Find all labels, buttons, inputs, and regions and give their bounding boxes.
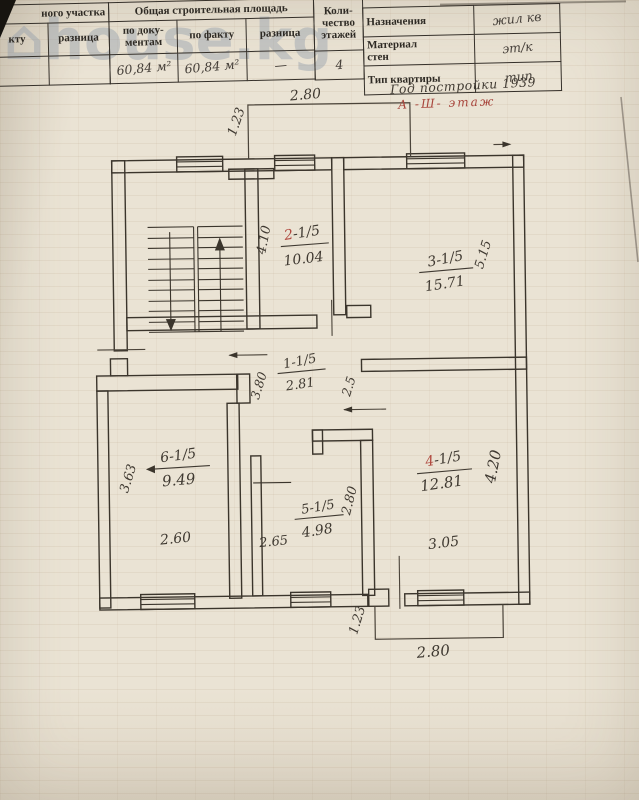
corridor-1-number: 1-1/5 — [282, 351, 318, 372]
dim-top-balcony-width: 2.80 — [288, 86, 321, 105]
dim-room6-width: 2.60 — [158, 530, 192, 549]
dim-room2-height: 4.10 — [254, 224, 275, 256]
window — [141, 594, 195, 610]
room-6-area: 9.49 — [161, 470, 196, 491]
room-5-number: 5-1/5 — [300, 497, 336, 517]
dim-corridor-depth: 2.5 — [338, 374, 359, 398]
dim-room5-height: 2.80 — [339, 485, 361, 518]
room-3-number: 3-1/5 — [426, 248, 465, 271]
dim-bottom-balcony-width: 2.80 — [415, 641, 451, 662]
dim-room3-height: 5.15 — [472, 239, 495, 271]
window — [291, 592, 331, 608]
dim-top-balcony-depth: 1.23 — [225, 106, 249, 138]
room-5-area: 4.98 — [300, 521, 334, 542]
stair-arrow-up — [215, 237, 226, 331]
window — [275, 155, 315, 171]
scanned-document-page: ⌂house.kg ного участка кту разница Общая… — [0, 0, 639, 800]
dim-room4-width: 3.05 — [427, 534, 460, 554]
page-edge-line — [621, 97, 638, 262]
stair-arrow-down — [165, 232, 176, 331]
window — [418, 590, 464, 606]
window — [407, 153, 465, 169]
bottom-balcony — [375, 604, 503, 639]
room-2-area: 10.04 — [283, 249, 325, 270]
dim-room5-width: 2.65 — [258, 533, 289, 551]
room-3-area: 15.71 — [424, 273, 466, 295]
room-6-number: 6-1/5 — [159, 446, 197, 467]
dim-bottom-balcony-depth: 1.23 — [346, 604, 369, 636]
room-4-area: 12.81 — [419, 472, 464, 496]
floor-plan: 2-1/5 10.04 3-1/5 15.71 1-1/5 2.81 6-1/5… — [0, 0, 639, 800]
dim-corridor-width: 3.80 — [247, 370, 270, 401]
dim-room6-height: 3.63 — [117, 463, 140, 495]
room-4-number: 4-1/5 — [423, 448, 462, 470]
window — [177, 156, 223, 172]
corridor-1-area: 2.81 — [284, 375, 316, 394]
dim-room4-height: 4.20 — [481, 448, 505, 486]
top-balcony — [248, 103, 411, 159]
room-2-number: 2-1/5 — [282, 223, 321, 245]
